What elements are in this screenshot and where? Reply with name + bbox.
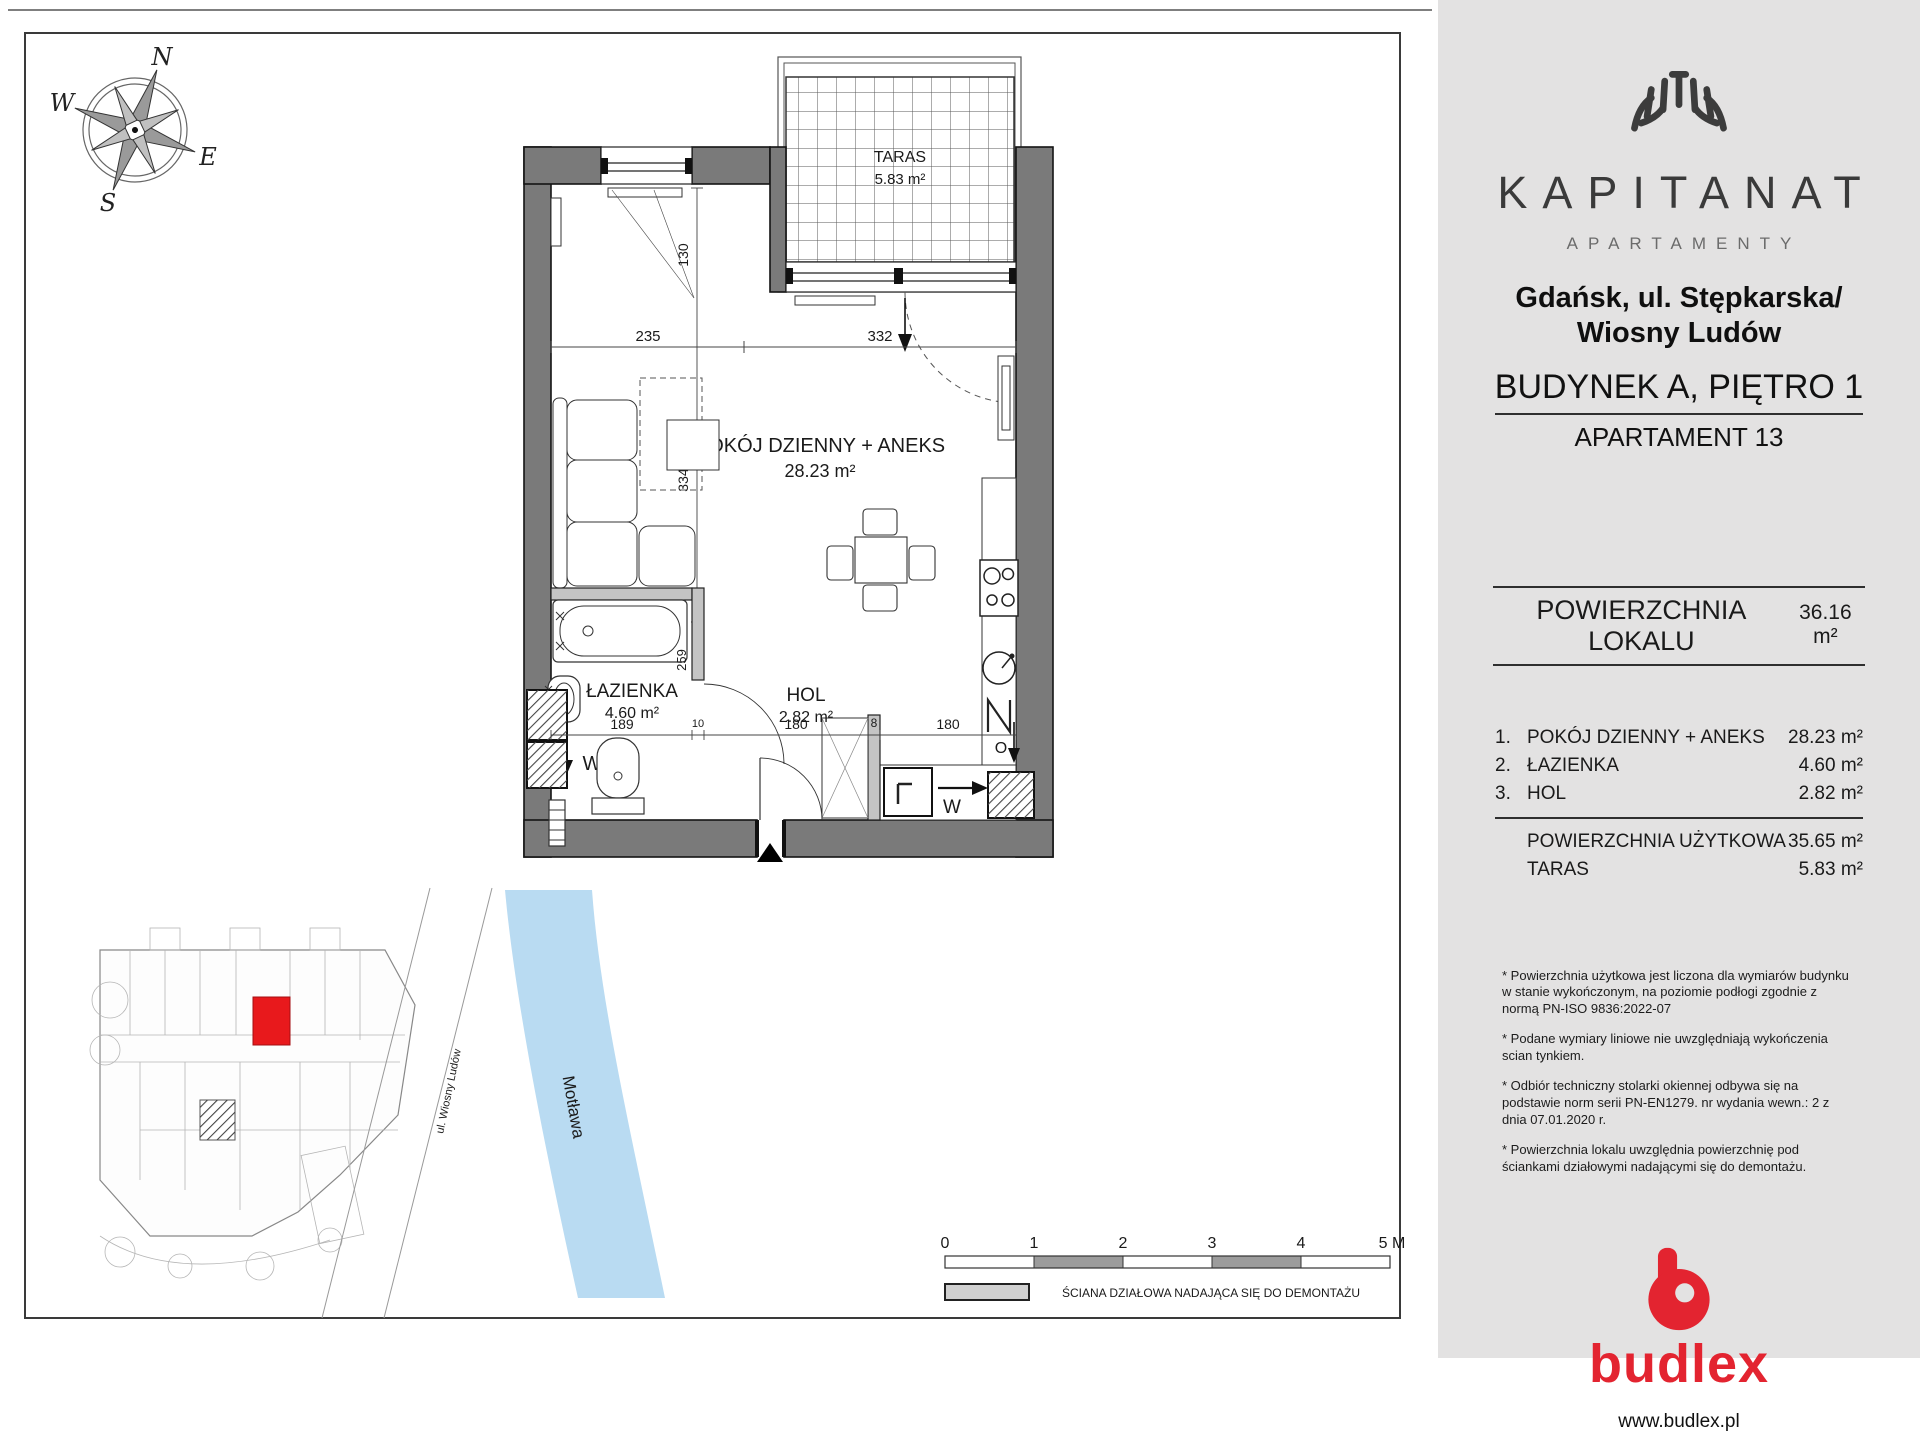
building-floor-title: BUDYNEK A, PIĘTRO 1 — [1438, 368, 1920, 407]
highlighted-unit — [253, 997, 290, 1045]
hall: HOL 2.82 m² — [779, 685, 880, 820]
legend: ŚCIANA DZIAŁOWA NADAJĄCA SIĘ DO DEMONTAŻ… — [945, 1284, 1360, 1300]
total-row: TARAS 5.83 m² — [1495, 856, 1863, 884]
hall-partition-wall — [868, 715, 880, 820]
dim-180-hall: 180 — [784, 716, 808, 732]
total-name: POWIERZCHNIA UŻYTKOWA — [1495, 828, 1788, 856]
dim-235: 235 — [635, 328, 660, 345]
total-area: 5.83 m² — [1799, 856, 1863, 884]
window-living — [601, 147, 692, 184]
marker-w-kitchen: W — [943, 797, 961, 818]
footnotes: * Powierzchnia użytkowa jest liczona dla… — [1502, 968, 1856, 1176]
footnote: * Powierzchnia użytkowa jest liczona dla… — [1502, 968, 1856, 1019]
brand-name: KAPITANAT — [1438, 167, 1920, 219]
dim-180-kitchen: 180 — [936, 716, 960, 732]
budlex-url: www.budlex.pl — [1438, 1411, 1920, 1433]
dim-259: 259 — [674, 649, 689, 671]
room-name: ŁAZIENKA — [1527, 752, 1799, 780]
bathroom-wall-right — [692, 588, 704, 680]
scale-tick-1: 1 — [1030, 1235, 1039, 1252]
info-sidebar: KAPITANAT APARTAMENTY Gdańsk, ul. Stępka… — [1438, 0, 1920, 1358]
kapitanat-logo-icon — [1438, 66, 1920, 155]
total-area-label: POWIERZCHNIA LOKALU — [1495, 595, 1788, 657]
hall-wardrobe — [822, 718, 868, 818]
terrace-floor-grid — [786, 77, 1014, 262]
room-row: 2. ŁAZIENKA 4.60 m² — [1495, 752, 1863, 780]
tv-cabinet — [998, 356, 1014, 440]
dim-334: 334 — [675, 468, 691, 492]
radiator-top — [608, 188, 682, 197]
budlex-wordmark: budlex — [1438, 1333, 1920, 1395]
street-label: ul. Wiosny Ludów — [434, 1048, 464, 1135]
room-row: 3. HOL 2.82 m² — [1495, 780, 1863, 808]
wall-bottom-right — [784, 820, 1053, 857]
room-area: 2.82 m² — [1799, 780, 1863, 808]
bathroom-wall-top — [551, 588, 692, 600]
compass-s-label: S — [100, 189, 116, 217]
total-area-value: 36.16 m² — [1788, 601, 1863, 649]
room-row: 1. POKÓJ DZIENNY + ANEKS 28.23 m² — [1495, 724, 1863, 752]
side-table — [667, 420, 719, 470]
wall-right — [1016, 147, 1053, 857]
bathtub — [553, 600, 687, 662]
dining-set — [827, 509, 935, 611]
legend-swatch — [945, 1284, 1029, 1300]
room-number: 1. — [1495, 724, 1527, 752]
apartment-number: APARTAMENT 13 — [1438, 422, 1920, 453]
site-plan: ul. Wiosny Ludów Motława — [90, 888, 665, 1318]
floor-plan-canvas: N W E S TARAS 5.83 m² — [0, 0, 1438, 1358]
project-address: Gdańsk, ul. Stępkarska/ Wiosny Ludów — [1463, 281, 1895, 351]
legend-label: ŚCIANA DZIAŁOWA NADAJĄCA SIĘ DO DEMONTAŻ… — [1062, 1285, 1360, 1300]
room-list: 1. POKÓJ DZIENNY + ANEKS 28.23 m² 2. ŁAZ… — [1495, 724, 1863, 884]
toilet — [592, 738, 644, 814]
scale-tick-3: 3 — [1208, 1235, 1217, 1252]
living-room-label: POKÓJ DZIENNY + ANEKS — [695, 434, 945, 457]
budlex-logo: budlex www.budlex.pl — [1438, 1246, 1920, 1433]
stove-icon — [980, 560, 1018, 616]
compass-n-label: N — [151, 43, 174, 71]
scale-tick-4: 4 — [1297, 1235, 1306, 1252]
compass-e-label: E — [198, 143, 217, 171]
footnote: * Podane wymiary liniowe nie uwzględniaj… — [1502, 1031, 1856, 1065]
total-area: 35.65 m² — [1788, 828, 1863, 856]
sink-icon — [983, 652, 1015, 684]
total-name: TARAS — [1495, 856, 1799, 884]
terrace: TARAS 5.83 m² — [778, 57, 1021, 292]
room-area: 4.60 m² — [1799, 752, 1863, 780]
bathroom-label: ŁAZIENKA — [586, 681, 678, 702]
footnote: * Powierzchnia lokalu uwzględnia powierz… — [1502, 1142, 1856, 1176]
radiator-balcony — [795, 296, 875, 305]
scale-tick-0: 0 — [941, 1235, 950, 1252]
room-name: POKÓJ DZIENNY + ANEKS — [1527, 724, 1788, 752]
window-balcony — [786, 262, 1016, 292]
dim-189: 189 — [610, 716, 634, 732]
marker-o: O — [995, 740, 1007, 757]
room-number: 3. — [1495, 780, 1527, 808]
compass-w-label: W — [50, 89, 77, 117]
corner-cabinet — [884, 768, 932, 816]
room-number: 2. — [1495, 752, 1527, 780]
room-name: HOL — [1527, 780, 1799, 808]
radiator-left — [551, 198, 561, 246]
brand-tagline: APARTAMENTY — [1438, 234, 1920, 254]
terrace-label: TARAS — [874, 149, 926, 166]
site-stair-core — [200, 1100, 235, 1140]
wall-terrace-left — [770, 147, 786, 292]
scale-tick-5: 5 M — [1379, 1235, 1406, 1252]
title-divider — [1495, 413, 1863, 415]
scale-bar: 0 1 2 3 4 5 M — [941, 1235, 1406, 1268]
budlex-logo-icon — [1619, 1246, 1739, 1334]
terrace-area: 5.83 m² — [875, 171, 926, 188]
scale-tick-2: 2 — [1119, 1235, 1128, 1252]
dim-10: 10 — [692, 718, 704, 730]
area-totals: POWIERZCHNIA UŻYTKOWA 35.65 m² TARAS 5.8… — [1495, 817, 1863, 884]
river — [505, 890, 665, 1298]
footnote: * Odbiór techniczny stolarki okiennej od… — [1502, 1078, 1856, 1129]
bathroom-door-swing — [704, 684, 784, 764]
dim-8: 8 — [871, 716, 878, 730]
shaft-kitchen — [988, 772, 1034, 818]
dim-332: 332 — [867, 328, 892, 345]
total-row: POWIERZCHNIA UŻYTKOWA 35.65 m² — [1495, 828, 1863, 856]
dimension-line-top — [551, 341, 1016, 353]
hall-label: HOL — [786, 685, 825, 706]
wall-top-right — [692, 147, 770, 184]
dim-130: 130 — [675, 243, 691, 267]
room-area: 28.23 m² — [1788, 724, 1863, 752]
wall-top-left — [524, 147, 601, 184]
compass-rose-icon: N W E S — [48, 43, 222, 217]
total-area-block: POWIERZCHNIA LOKALU 36.16 m² — [1493, 586, 1865, 666]
kitchen: O W — [880, 478, 1034, 820]
bathroom: W ŁAZIENKA 4.60 m² — [545, 588, 784, 814]
floor-plan-panel: N W E S TARAS 5.83 m² — [0, 0, 1438, 1358]
living-room-area: 28.23 m² — [784, 461, 855, 481]
